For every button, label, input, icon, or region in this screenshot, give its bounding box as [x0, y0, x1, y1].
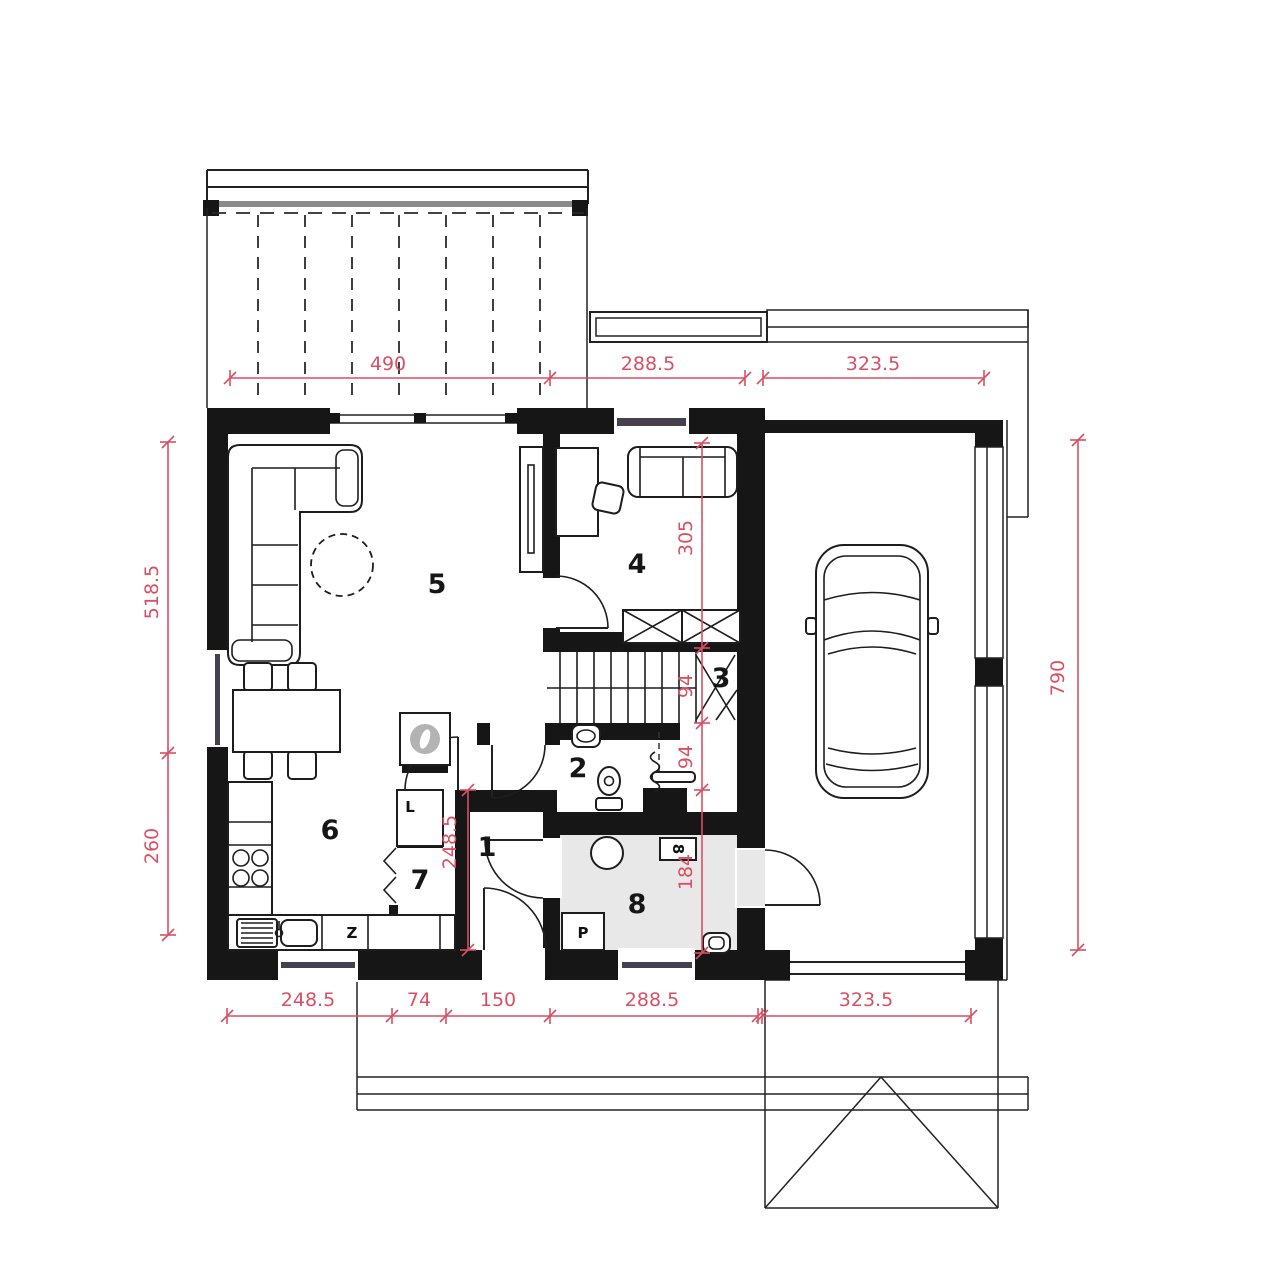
room-label-1: 1 [478, 832, 497, 863]
dim-inner-184: 184 [675, 854, 697, 890]
wardrobe [623, 610, 740, 643]
dim-bottom-323: 323.5 [839, 989, 893, 1011]
kitchen-window-glass [281, 962, 355, 968]
garage-doorway-floor [737, 850, 765, 906]
water-heater-icon [591, 837, 623, 869]
dim-left-518: 518.5 [141, 565, 163, 619]
garage-gate-opening [790, 948, 965, 982]
dim-top-490: 490 [370, 353, 406, 375]
stairs [547, 652, 737, 723]
room-label-5: 5 [428, 569, 447, 600]
room7-wardrobe [397, 790, 443, 846]
corner-sofa [228, 445, 362, 665]
kitchen-counter-left [228, 782, 272, 915]
room4-furniture [556, 447, 740, 643]
dim-bottom-248: 248.5 [281, 989, 335, 1011]
car-mirror [806, 618, 816, 634]
room4-door-opening [541, 578, 562, 628]
walkway-and-carport-roof [357, 980, 1028, 1208]
dim-right-790: 790 [1047, 660, 1069, 696]
desk [556, 448, 598, 536]
wall-room8-top [543, 812, 765, 835]
dim-bottom-288: 288.5 [625, 989, 679, 1011]
floor-plan-canvas: 490 288.5 323.5 248.5 74 150 288.5 323.5… [0, 0, 1280, 1280]
desk-chair [591, 481, 624, 514]
chair [244, 751, 272, 779]
left-window-glass [215, 654, 220, 745]
wc-door-opening [490, 721, 545, 747]
wall-stairs-bottom [547, 723, 680, 740]
room7-folding-door [384, 848, 396, 903]
floor-plan-drawing: 490 288.5 323.5 248.5 74 150 288.5 323.5… [0, 0, 1280, 1280]
room4-window-glass [617, 418, 686, 426]
garage-window1-opening [975, 447, 1003, 658]
hip-roof-line-right [881, 1077, 998, 1208]
wall-garage-top [765, 420, 1003, 433]
dim-top-288: 288.5 [621, 353, 675, 375]
room-label-3: 3 [712, 663, 731, 694]
dining-table-set [233, 663, 340, 779]
chair [288, 663, 316, 691]
tv-cabinet [520, 447, 543, 572]
chair [288, 751, 316, 779]
room4-door [556, 576, 608, 628]
room-label-7: 7 [411, 865, 430, 896]
room-label-6: 6 [321, 815, 340, 846]
dim-bottom-150: 150 [480, 989, 516, 1011]
wall-hall-wc [455, 790, 557, 812]
freezer-marker: Z [347, 924, 358, 942]
car-icon [806, 545, 938, 798]
chair [244, 663, 272, 691]
dim-hall-248: 248.5 [439, 815, 461, 869]
toilet-icon [596, 767, 622, 810]
meter-marker: 8 [669, 844, 687, 854]
room-label-4: 4 [628, 549, 647, 580]
dim-inner-94b: 94 [675, 745, 697, 769]
dim-top-323: 323.5 [846, 353, 900, 375]
car-mirror [928, 618, 938, 634]
dim-bottom-74: 74 [407, 989, 431, 1011]
room8-window-glass [622, 962, 692, 968]
floor-drain-icon [703, 933, 730, 953]
hip-roof-line-left [765, 1077, 881, 1208]
entrance-door-opening [482, 948, 545, 982]
room-label-2: 2 [569, 753, 588, 784]
dim-inner-94a: 94 [675, 674, 697, 698]
dim-inner-305: 305 [675, 520, 697, 556]
room-label-8: 8 [628, 889, 647, 920]
wardrobe-marker: L [405, 798, 415, 816]
garage-window2-opening [975, 686, 1003, 938]
washer-marker: P [578, 924, 589, 942]
shelf [652, 772, 695, 782]
fridge-icon [400, 713, 450, 765]
garage-access-door [765, 850, 820, 905]
sink-icon [237, 919, 317, 947]
room8-door-opening [541, 838, 562, 898]
dining-table [233, 690, 340, 752]
dim-left-260: 260 [141, 828, 163, 864]
coffee-table [311, 534, 373, 596]
